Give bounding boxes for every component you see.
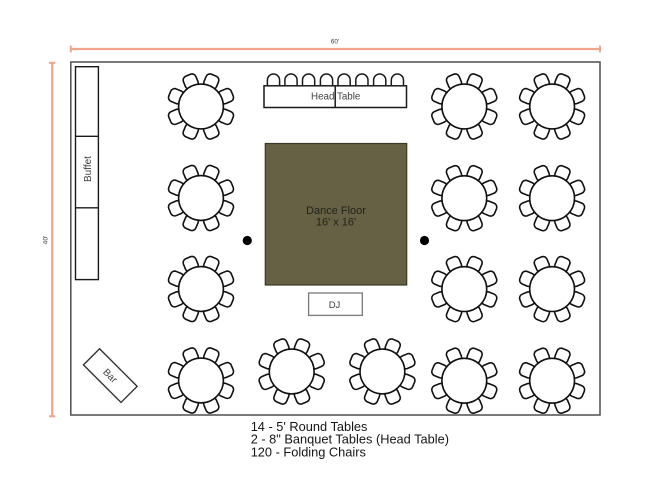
svg-text:120 - Folding Chairs: 120 - Folding Chairs — [251, 445, 366, 460]
svg-text:DJ: DJ — [329, 300, 341, 311]
svg-text:40': 40' — [43, 236, 50, 245]
svg-text:16' x 16': 16' x 16' — [316, 216, 356, 228]
svg-text:Buffet: Buffet — [83, 156, 94, 182]
svg-text:60': 60' — [331, 39, 339, 46]
svg-text:Dance Floor: Dance Floor — [306, 205, 366, 217]
svg-text:Head Table: Head Table — [311, 91, 361, 102]
